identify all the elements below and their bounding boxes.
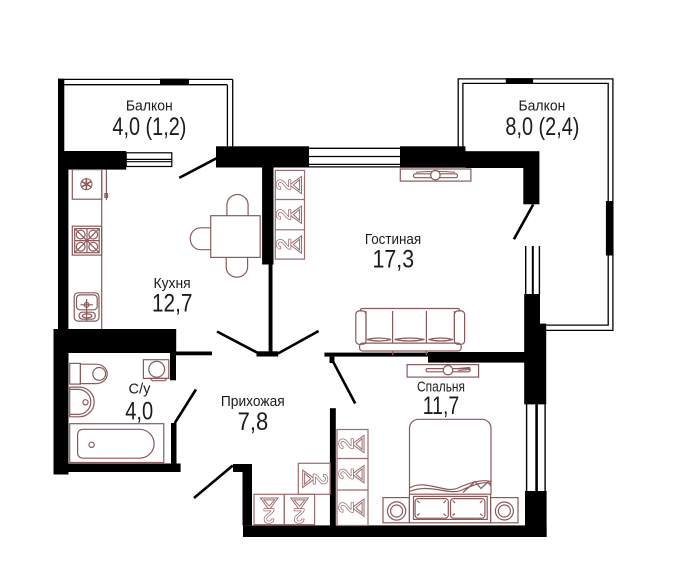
svg-text:7,8: 7,8 — [238, 408, 269, 436]
svg-text:4,0 (1,2): 4,0 (1,2) — [112, 113, 186, 141]
svg-text:8,0 (2,4): 8,0 (2,4) — [505, 113, 579, 141]
svg-text:12,7: 12,7 — [152, 290, 192, 318]
svg-text:4,0: 4,0 — [125, 398, 153, 426]
svg-text:11,7: 11,7 — [423, 392, 460, 420]
svg-text:17,3: 17,3 — [373, 246, 415, 274]
svg-text:С/у: С/у — [129, 381, 151, 398]
